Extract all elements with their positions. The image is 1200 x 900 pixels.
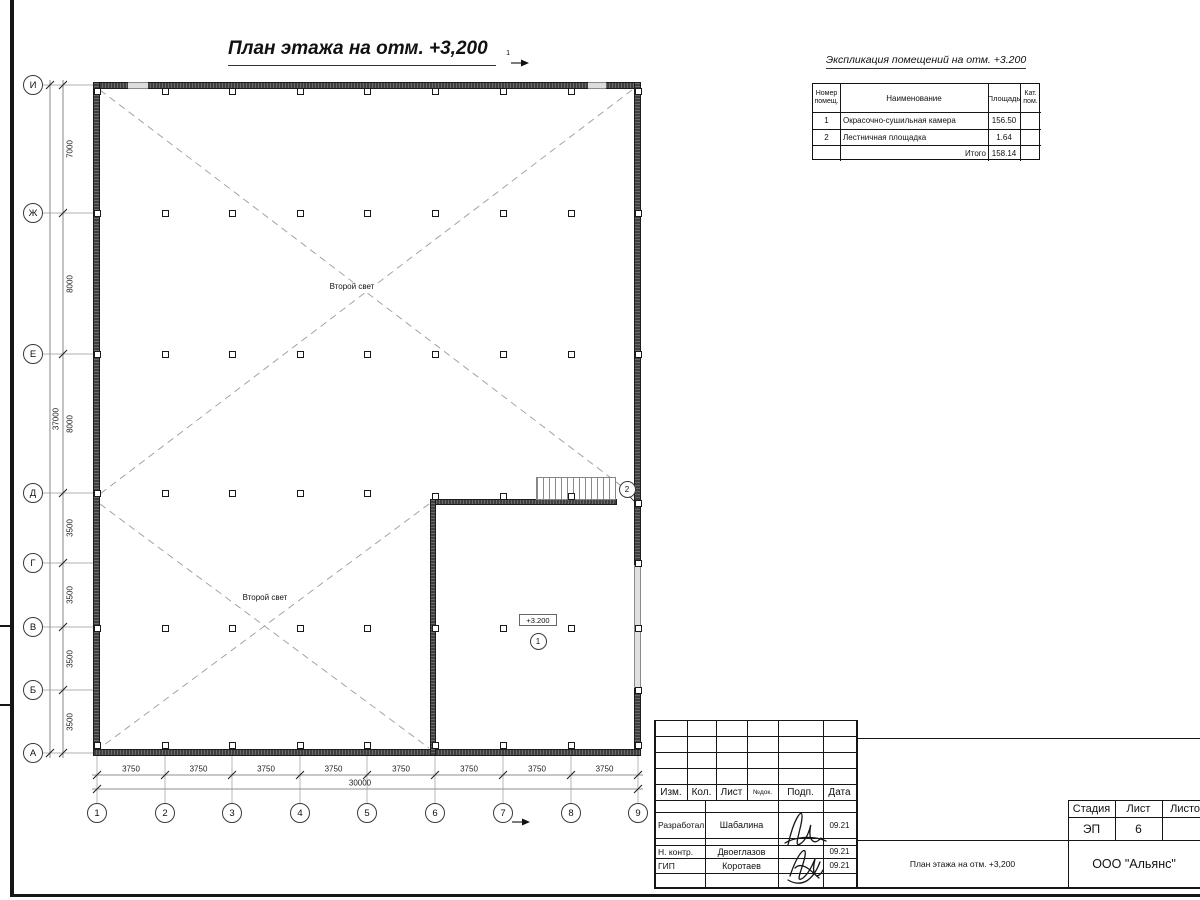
- column-marker: [364, 625, 371, 632]
- axis-bubble-left: Д: [23, 483, 43, 503]
- column-marker: [635, 687, 642, 694]
- explication-title-text: Экспликация помещений на отм. +3.200: [826, 54, 1026, 69]
- column-marker: [432, 493, 439, 500]
- axis-bubble-left: Г: [23, 553, 43, 573]
- column-marker: [635, 210, 642, 217]
- staff-name: Коротаев: [705, 858, 778, 873]
- dimension-text: 3750: [392, 765, 410, 774]
- column-marker: [500, 88, 507, 95]
- col-header-area: Площадь: [988, 84, 1020, 112]
- dimension-text: 7000: [66, 140, 75, 158]
- col-header-name: Наименование: [840, 84, 988, 112]
- column-marker: [635, 351, 642, 358]
- column-marker: [432, 88, 439, 95]
- axis-bubble-left: Б: [23, 680, 43, 700]
- column-marker: [364, 351, 371, 358]
- sheet-number: 6: [1115, 817, 1162, 840]
- room-number-bubble: 2: [619, 481, 636, 498]
- section-arrow-top-head: [521, 60, 529, 67]
- column-marker: [568, 210, 575, 217]
- column-marker: [500, 742, 507, 749]
- staff-date: 09.21: [823, 858, 856, 873]
- column-marker: [635, 560, 642, 567]
- dimension-text: 8000: [66, 415, 75, 433]
- dimension-text: 3750: [528, 765, 546, 774]
- column-marker: [94, 490, 101, 497]
- column-marker: [635, 88, 642, 95]
- column-marker: [432, 742, 439, 749]
- wall-opening: [128, 82, 148, 89]
- staff-role: Разработал: [658, 812, 704, 838]
- column-marker: [432, 210, 439, 217]
- room-number-bubble: 1: [530, 633, 547, 650]
- col-header-number: Номер помещ.: [813, 84, 840, 112]
- room-number-cell: 1: [813, 112, 840, 129]
- column-marker: [500, 625, 507, 632]
- column-marker: [297, 88, 304, 95]
- column-marker: [229, 490, 236, 497]
- column-marker: [568, 493, 575, 500]
- room-name-cell: Лестничная площадка: [840, 129, 988, 145]
- column-marker: [94, 742, 101, 749]
- column-marker: [364, 742, 371, 749]
- column-marker: [432, 351, 439, 358]
- signature-dvoeglazov: [788, 850, 823, 883]
- column-marker: [229, 351, 236, 358]
- column-marker: [229, 625, 236, 632]
- dimension-total-text: 37000: [52, 408, 61, 430]
- company-name: ООО "Альянс": [1068, 840, 1200, 887]
- column-marker: [162, 490, 169, 497]
- exterior-wall-bottom: [93, 749, 641, 756]
- column-marker: [297, 625, 304, 632]
- column-marker: [500, 351, 507, 358]
- rev-col-izm: Изм.: [655, 784, 687, 800]
- signature-shabalina: [785, 813, 826, 845]
- axis-bubble-left: Ж: [23, 203, 43, 223]
- axis-bubble-bottom: 9: [628, 803, 648, 823]
- column-marker: [635, 742, 642, 749]
- wall-opening: [588, 82, 606, 89]
- column-marker: [500, 210, 507, 217]
- axis-bubble-bottom: 1: [87, 803, 107, 823]
- rev-col-list: Лист: [716, 784, 747, 800]
- rev-col-kol: Кол.: [687, 784, 716, 800]
- axis-bubble-left: И: [23, 75, 43, 95]
- column-marker: [297, 210, 304, 217]
- staff-role: Н. контр.: [658, 845, 704, 858]
- column-marker: [94, 88, 101, 95]
- column-marker: [162, 625, 169, 632]
- room-area-cell: 1.64: [988, 129, 1020, 145]
- stair-flight: [536, 477, 616, 500]
- axis-bubble-bottom: 8: [561, 803, 581, 823]
- column-marker: [568, 625, 575, 632]
- staff-date: 09.21: [823, 812, 856, 838]
- column-marker: [162, 351, 169, 358]
- section-arrow-bottom-head: [522, 819, 530, 826]
- axis-bubble-bottom: 7: [493, 803, 513, 823]
- column-marker: [568, 88, 575, 95]
- sheet-label: Лист: [1115, 800, 1162, 817]
- staff-name: Двоеглазов: [705, 845, 778, 858]
- explication-table: Номер помещ. Наименование Площадь Кат. п…: [812, 83, 1040, 160]
- dimension-text: 8000: [66, 275, 75, 293]
- dimension-text: 3500: [66, 713, 75, 731]
- column-marker: [229, 742, 236, 749]
- sheets-label: Листов: [1162, 800, 1200, 817]
- column-marker: [94, 625, 101, 632]
- total-area: 158.14: [988, 145, 1020, 161]
- col-header-category: Кат. пом.: [1020, 84, 1041, 112]
- column-marker: [162, 88, 169, 95]
- room-name-cell: Окрасочно-сушильная камера: [840, 112, 988, 129]
- dimension-text: 3500: [66, 586, 75, 604]
- column-marker: [94, 210, 101, 217]
- axis-bubble-left: В: [23, 617, 43, 637]
- dimension-text: 3750: [190, 765, 208, 774]
- column-marker: [297, 351, 304, 358]
- axis-bubble-left: А: [23, 743, 43, 763]
- column-marker: [229, 88, 236, 95]
- explication-title: Экспликация помещений на отм. +3.200: [812, 54, 1040, 66]
- rev-col-podp: Подп.: [778, 784, 823, 800]
- document-title: План этажа на отм. +3,200: [857, 840, 1068, 887]
- dimension-total-text: 30000: [349, 779, 371, 788]
- second-light-label: Второй свет: [242, 593, 288, 603]
- dimension-text: 3500: [66, 650, 75, 668]
- column-marker: [162, 210, 169, 217]
- rev-col-dok: №док.: [747, 784, 778, 800]
- level-mark: +3.200: [519, 614, 557, 626]
- room-area-cell: 156.50: [988, 112, 1020, 129]
- dimension-text: 3750: [596, 765, 614, 774]
- dimension-text: 3750: [122, 765, 140, 774]
- column-marker: [229, 210, 236, 217]
- staff-date: 09.21: [823, 845, 856, 858]
- total-label: Итого: [840, 145, 988, 161]
- column-marker: [432, 625, 439, 632]
- column-marker: [297, 742, 304, 749]
- column-marker: [94, 351, 101, 358]
- column-marker: [364, 210, 371, 217]
- dimension-text: 3750: [325, 765, 343, 774]
- stage-label: Стадия: [1068, 800, 1115, 817]
- dimension-text: 3750: [460, 765, 478, 774]
- axis-bubble-left: Е: [23, 344, 43, 364]
- axis-bubble-bottom: 3: [222, 803, 242, 823]
- axis-bubble-bottom: 5: [357, 803, 377, 823]
- axis-bubble-bottom: 6: [425, 803, 445, 823]
- column-marker: [500, 493, 507, 500]
- column-marker: [635, 500, 642, 507]
- column-marker: [297, 490, 304, 497]
- dimension-text: 3750: [257, 765, 275, 774]
- staff-name: Шабалина: [705, 812, 778, 838]
- room-number-cell: 2: [813, 129, 840, 145]
- exterior-wall-left: [93, 82, 100, 756]
- drawing-sheet: План этажа на отм. +3,200 1 1 Второй све…: [0, 0, 1200, 900]
- axis-bubble-bottom: 4: [290, 803, 310, 823]
- column-marker: [568, 742, 575, 749]
- staff-role: ГИП: [658, 858, 704, 873]
- column-marker: [635, 625, 642, 632]
- rev-col-data: Дата: [823, 784, 856, 800]
- stage-value: ЭП: [1068, 817, 1115, 840]
- column-marker: [364, 88, 371, 95]
- second-light-label: Второй свет: [329, 282, 375, 292]
- column-marker: [162, 742, 169, 749]
- column-marker: [364, 490, 371, 497]
- axis-bubble-bottom: 2: [155, 803, 175, 823]
- dimension-text: 3500: [66, 519, 75, 537]
- column-marker: [568, 351, 575, 358]
